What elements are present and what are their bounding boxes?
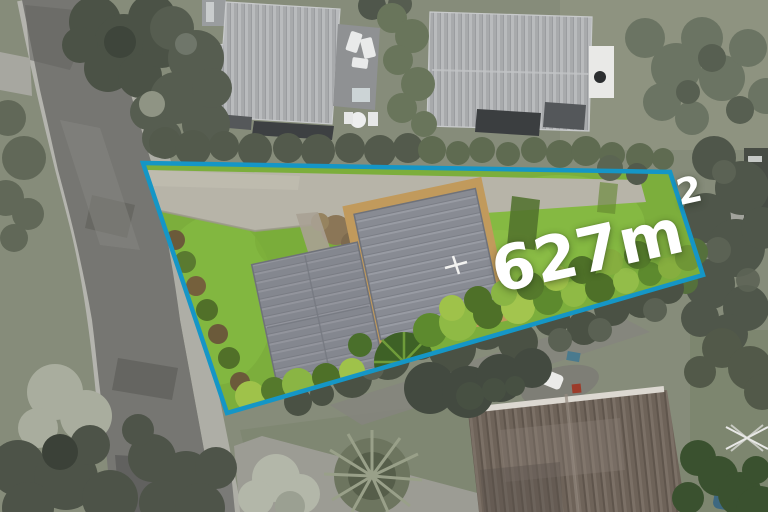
roof-main <box>218 2 340 124</box>
tree <box>42 434 78 470</box>
outdoor-chair <box>344 112 353 124</box>
solar-panel <box>748 156 762 162</box>
house-wall <box>543 102 586 130</box>
neighbor-house-top-right <box>427 12 614 136</box>
tree <box>175 33 197 55</box>
aerial-photo: 627m2 <box>0 0 768 512</box>
roof-shadow <box>480 462 563 512</box>
overhang-tree <box>597 155 623 181</box>
house-wall <box>475 109 541 136</box>
side-driveway <box>0 52 32 96</box>
tree <box>104 26 136 58</box>
fern-tree <box>139 91 165 117</box>
overhang-tree <box>626 163 648 185</box>
chimney <box>572 383 582 393</box>
spa <box>352 88 370 102</box>
skylight <box>206 2 214 22</box>
outdoor-chair <box>368 112 378 126</box>
patio-chair <box>594 71 606 83</box>
